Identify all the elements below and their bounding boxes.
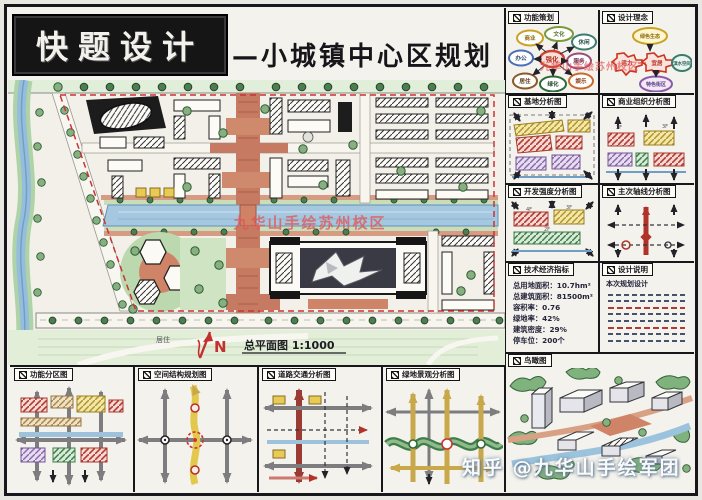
zone-label: 居住 [156,335,170,344]
hatch-icon [19,371,27,379]
handwriting-line [608,313,685,315]
svg-text:4F: 4F [526,207,532,213]
plan-scale-label: 总平面图 1:1000 [244,338,335,352]
handwriting-line [608,294,685,296]
svg-text:2F: 2F [544,227,550,233]
panel-header-axis: 主次轴线分析图 [602,185,676,198]
hatch-icon [607,266,615,274]
watermark-bottom-credit: 知乎 @九华山手绘军团 [462,453,700,480]
handwriting-line [608,333,685,335]
svg-text:娱乐: 娱乐 [575,77,587,85]
svg-text:文化: 文化 [553,30,565,38]
hatch-icon [513,98,521,106]
handwriting-line-red [608,307,685,309]
svg-text:办公: 办公 [515,54,527,62]
svg-text:3F: 3F [566,205,572,211]
yellow-pavilions [136,188,174,197]
logo-text: 快题设计 [36,22,204,68]
indicator-line: 容积率：0.76 [513,302,596,313]
page-title: —小城镇中心区规划 [232,36,500,73]
axis-analysis-diagram [600,199,692,259]
watermark-top-right: 九华山手绘苏州校区 [540,58,700,73]
design-notes: 本次规划设计 [601,277,692,350]
svg-text:3F: 3F [662,124,668,130]
handwriting-line [608,300,685,302]
svg-text:绿色生态: 绿色生态 [640,33,660,40]
hatch-icon [513,357,521,365]
hatch-icon [513,266,521,274]
hatch-icon [513,188,521,196]
indicators-list: 总用地面积：10.7hm² 总建筑面积：81500m² 容积率：0.76 绿地率… [506,278,596,350]
traffic-diagram [259,382,379,490]
svg-text:N: N [214,338,227,356]
indicator-line: 总用地面积：10.7hm² [513,280,596,291]
axis-west-lawn [180,238,227,310]
business-analysis-diagram: 2F 3F [600,109,692,182]
handwriting-line [608,340,685,342]
east-street-upper [360,93,370,203]
panel-header-intensity: 开发强度分析图 [508,185,582,198]
hatch-icon [607,98,615,106]
panel-header-site-analysis: 基地分析图 [508,95,567,108]
site-analysis-diagram [506,109,598,182]
indicator-line: 建筑密度：29% [513,324,596,335]
svg-text:居住: 居住 [519,77,531,85]
indicator-line: 总建筑面积：81500m² [513,291,596,302]
indicator-line: 停车位：200个 [513,335,596,346]
panel-header-concept-left: 功能策划 [508,11,559,24]
intensity-diagram: 4F 3F 2F [506,199,598,259]
structure-diagram [135,382,255,490]
hatch-icon [267,371,275,379]
panel-header-structure: 空间结构规划图 [138,368,212,381]
hatch-icon [513,14,521,22]
hatch-icon [143,371,151,379]
handwriting-line [608,320,685,322]
handwriting-line-red [608,327,685,329]
svg-text:特色街区: 特色街区 [646,81,666,88]
hatch-icon [391,371,399,379]
hatch-icon [607,188,615,196]
east-street-lower [428,231,438,313]
svg-text:商业: 商业 [524,34,536,42]
panel-header-birdseye: 鸟瞰图 [508,354,552,367]
svg-text:绿化: 绿化 [547,80,559,88]
panel-header-traffic: 道路交通分析图 [262,368,336,381]
zoning-diagram [11,382,131,490]
panel-header-notes: 设计说明 [602,263,653,276]
panel-header-landscape: 绿地景观分析图 [386,368,460,381]
panel-header-zoning: 功能分区图 [14,368,73,381]
panel-header-indicators: 技术经济指标 [508,263,574,276]
indicator-line: 绿地率：42% [513,313,596,324]
panel-header-concept-right: 设计理念 [602,11,653,24]
logo-art-block: 快题设计 [12,14,228,76]
watermark-center: 九华山手绘苏州校区 [190,212,430,233]
design-notes-intro: 本次规划设计 [606,279,687,289]
hatch-icon [607,14,615,22]
svg-text:2F: 2F [616,125,622,131]
panel-header-business: 商业组织分析图 [602,95,676,108]
svg-text:休闲: 休闲 [577,38,590,46]
